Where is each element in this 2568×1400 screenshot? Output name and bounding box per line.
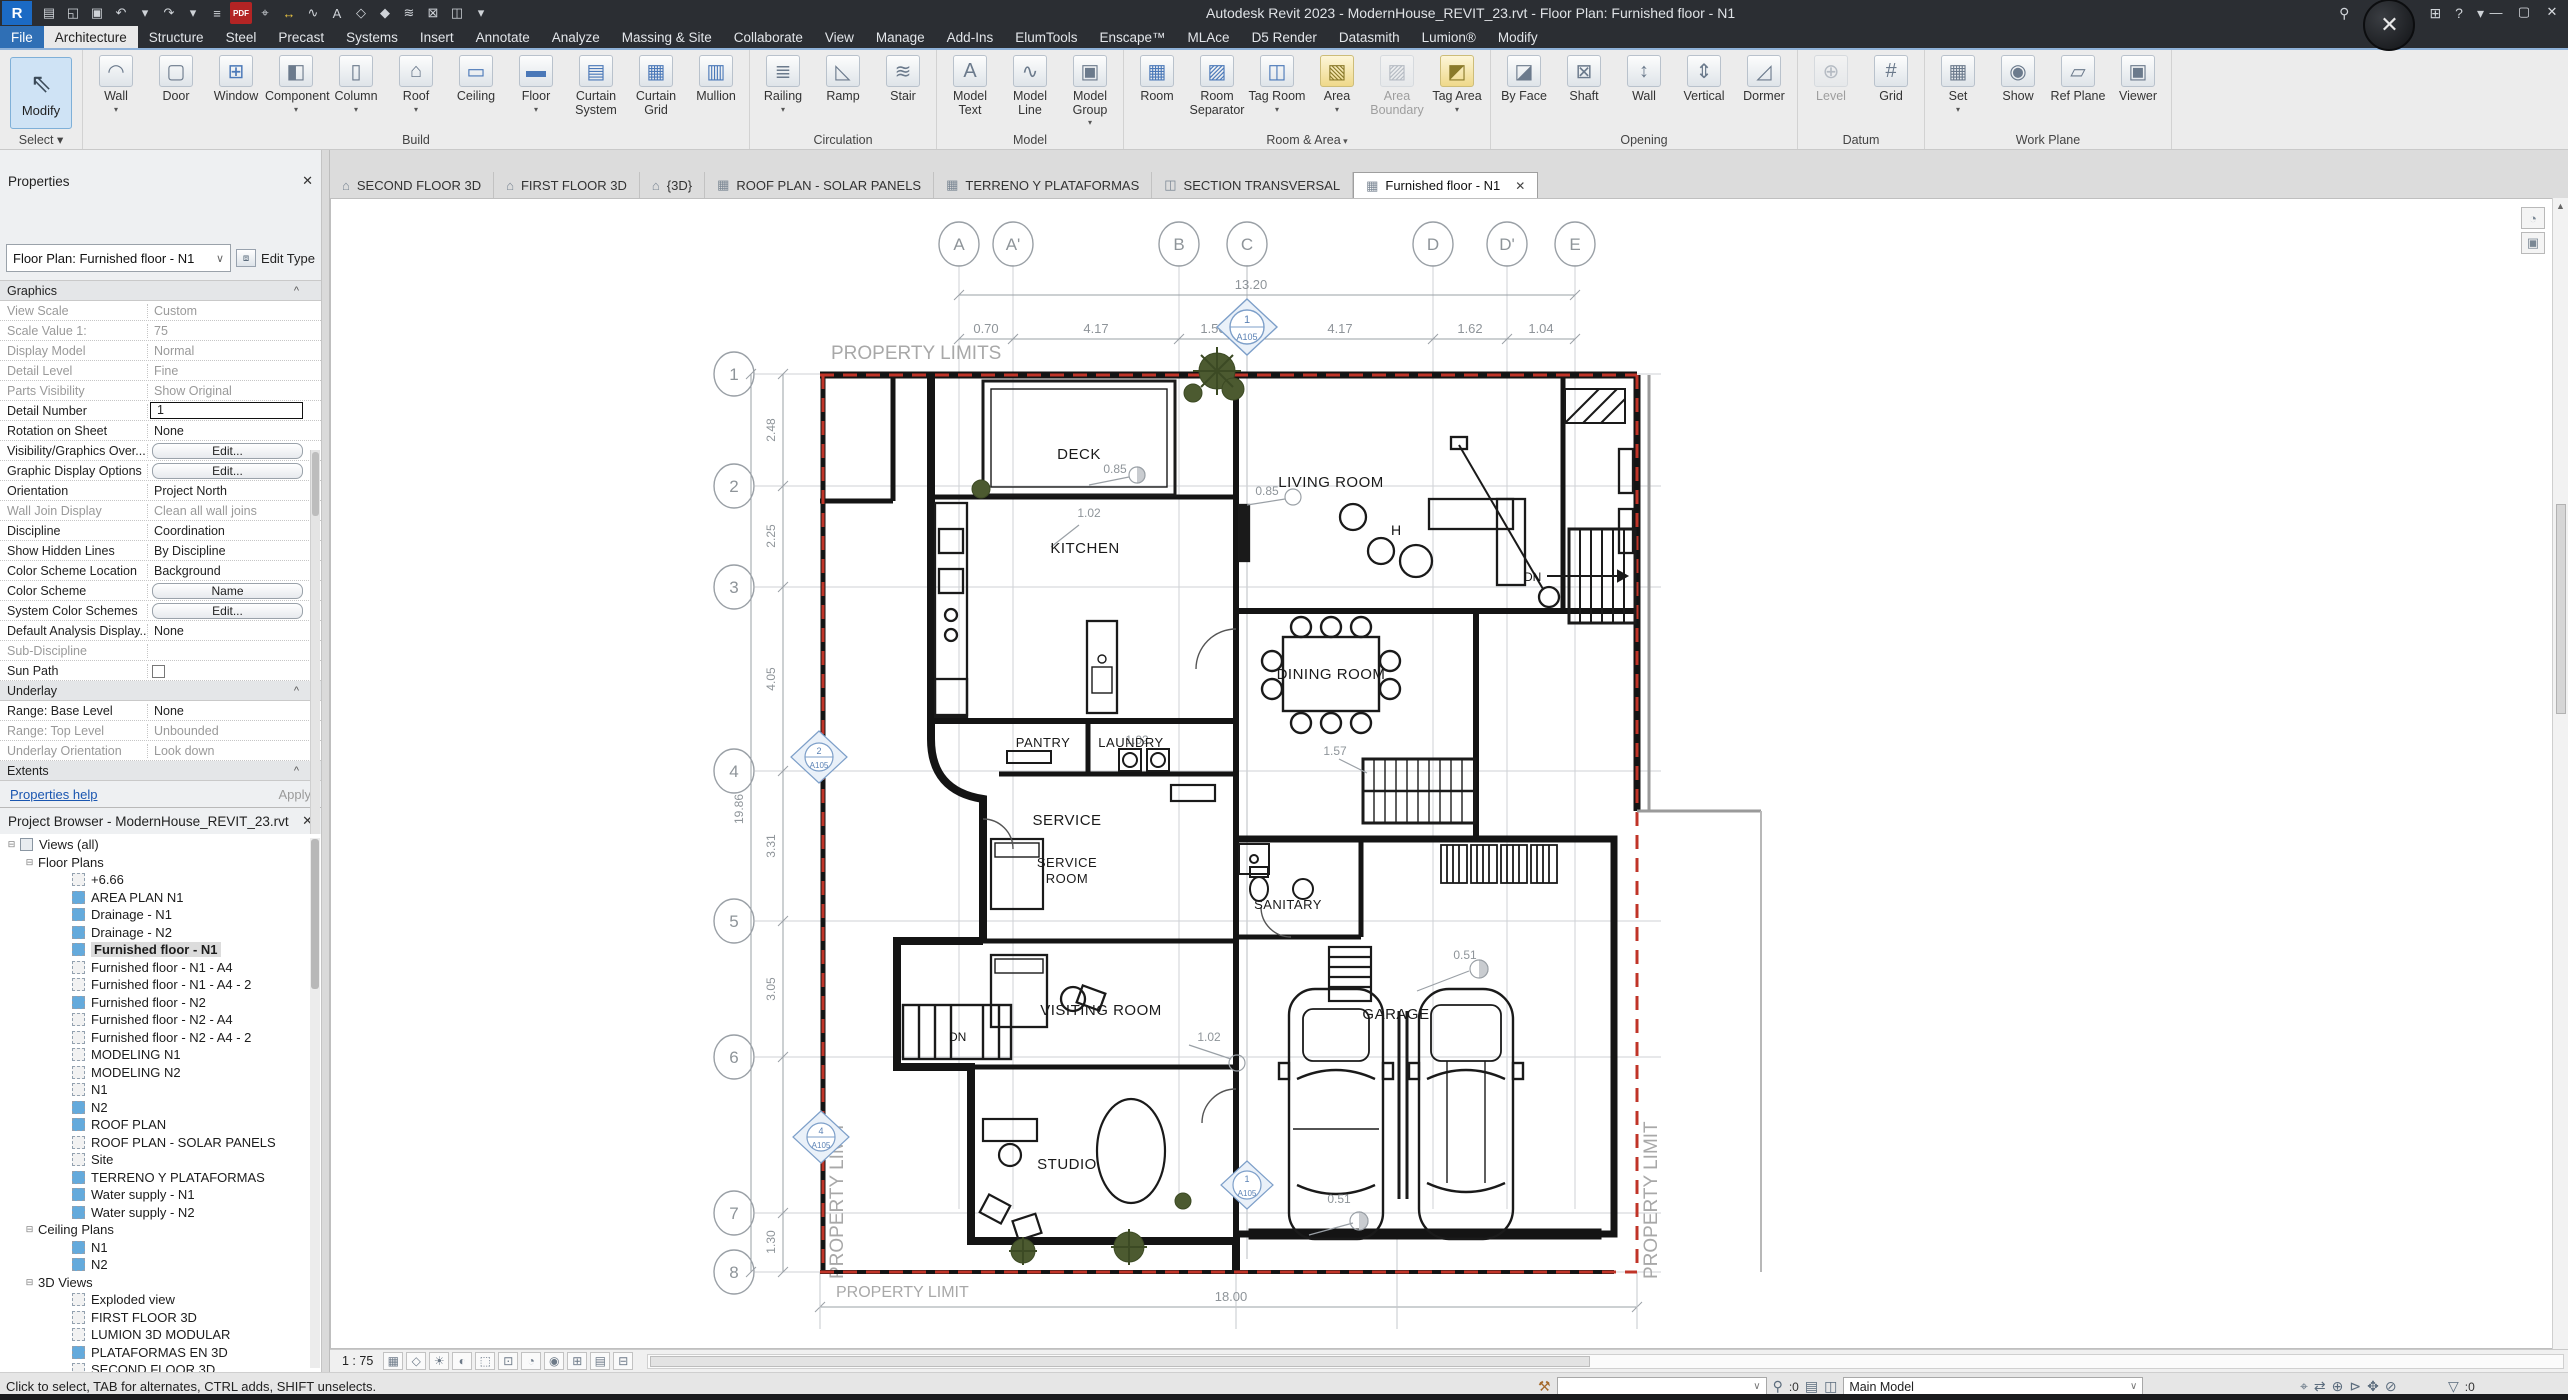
ribbon-tab[interactable]: Insert: [409, 26, 465, 48]
dimension-text: 0.70: [973, 321, 998, 336]
property-row[interactable]: Detail Number 1: [0, 401, 321, 421]
datum-panel: ⊕ Level # Grid Datum: [1798, 50, 1925, 149]
dimension-text: 0.85: [1255, 484, 1279, 498]
property-row[interactable]: Range: Base Level None: [0, 701, 321, 721]
room-label: LAUNDRY: [1098, 735, 1163, 750]
view-item-icon: [72, 926, 85, 939]
property-row[interactable]: Show Hidden Lines By Discipline: [0, 541, 321, 561]
room-label: VISITING ROOM: [1040, 1002, 1162, 1019]
ribbon-tab[interactable]: Enscape™: [1088, 26, 1176, 48]
set-workplane-button[interactable]: ▦ Set: [1929, 53, 1987, 114]
browser-tree-item[interactable]: ⊟ ROOF PLAN - SOLAR PANELS: [0, 1134, 321, 1152]
ribbon: ⇖ Modify Select ▾ ◠ Wall ▢ Door ⊞ Window…: [0, 48, 2568, 150]
close-button[interactable]: ✕: [2540, 4, 2564, 20]
grid-label: 6: [729, 1048, 738, 1067]
browser-tree-item[interactable]: ⊟ MODELING N2: [0, 1064, 321, 1082]
property-row[interactable]: Sub-Discipline: [0, 641, 321, 661]
edit-type-button[interactable]: ⧈ Edit Type: [236, 249, 315, 267]
model-text-button[interactable]: A Model Text: [941, 53, 999, 117]
datum-panel-title[interactable]: Datum: [1798, 132, 1924, 149]
svg-text:A105: A105: [1238, 1189, 1257, 1198]
dimension-text: 1.30: [764, 1230, 778, 1254]
grid-button[interactable]: # Grid: [1862, 53, 1920, 104]
level-button[interactable]: ⊕ Level: [1802, 53, 1860, 104]
worksets-icon[interactable]: ⚒: [1538, 1378, 1551, 1395]
ribbon-tab[interactable]: Add-Ins: [936, 26, 1005, 48]
room-label: ROOM: [1046, 871, 1088, 886]
grid-label: E: [1569, 235, 1580, 254]
column-marker: H: [1391, 522, 1401, 538]
default-3d-view-icon[interactable]: ◇: [350, 2, 372, 24]
expand-icon[interactable]: ⊟: [24, 1277, 35, 1288]
service-room-furniture: [991, 785, 1215, 909]
property-row[interactable]: Orientation Project North: [0, 481, 321, 501]
ribbon-tab[interactable]: Structure: [138, 26, 215, 48]
dimension-text: 1.04: [1528, 321, 1553, 336]
detail-line-icon[interactable]: ∿: [302, 2, 324, 24]
customize-qat-icon[interactable]: ▾: [470, 2, 492, 24]
view-tab[interactable]: ▦ Furnished floor - N1 ✕: [1353, 172, 1538, 198]
help-icon[interactable]: ?: [2455, 5, 2463, 21]
browser-tree-item[interactable]: ⊟ MODELING N1: [0, 1046, 321, 1064]
text-icon[interactable]: A: [326, 2, 348, 24]
room-area-panel-title[interactable]: Room & Area: [1124, 132, 1490, 149]
properties-table: Graphics View Scale Custom Scale Value 1…: [0, 280, 321, 781]
drawing-area[interactable]: A A' B C D D' E 1 2 3 4 5 6 7 8 13.20 0.…: [330, 198, 2568, 1349]
view-tab[interactable]: ⌂ FIRST FLOOR 3D: [494, 172, 640, 198]
ribbon-tab[interactable]: Systems: [335, 26, 409, 48]
close-view-icon[interactable]: ✕: [1515, 179, 1525, 193]
svg-text:2: 2: [816, 746, 821, 756]
show-workplane-button[interactable]: ◉ Show: [1989, 53, 2047, 104]
wall-button[interactable]: ◠ Wall: [87, 53, 145, 114]
project-browser: Project Browser - ModernHouse_REVIT_23.r…: [0, 807, 321, 1372]
tag-area-button[interactable]: ◩ Tag Area: [1428, 53, 1486, 114]
view-tab[interactable]: ⌂ {3D}: [640, 172, 705, 198]
filter-icon[interactable]: ▽: [2448, 1378, 2459, 1395]
view-item-icon: [72, 978, 85, 991]
view-tab[interactable]: ▦ TERRENO Y PLATAFORMAS: [934, 172, 1152, 198]
property-row[interactable]: Color Scheme Name: [0, 581, 321, 601]
browser-tree-item[interactable]: ⊟ +6.66: [0, 871, 321, 889]
overall-dimension: 13.20: [1235, 277, 1268, 292]
viewer-button[interactable]: ▣ Viewer: [2109, 53, 2167, 104]
redo-drop-icon[interactable]: ▾: [182, 2, 204, 24]
save-icon[interactable]: ▣: [86, 2, 108, 24]
browser-tree-item[interactable]: ⊟ Site: [0, 1151, 321, 1169]
dimension-text: 2.25: [764, 524, 778, 548]
property-row[interactable]: Range: Top Level Unbounded: [0, 721, 321, 741]
property-row[interactable]: Scale Value 1: 75: [0, 321, 321, 341]
property-row[interactable]: Default Analysis Display... None: [0, 621, 321, 641]
view-item-icon: [72, 891, 85, 904]
property-row[interactable]: Underlay: [0, 681, 321, 701]
browser-tree-item[interactable]: ⊟ Views (all): [0, 836, 321, 854]
room-label: DINING ROOM: [1277, 666, 1386, 683]
floor-plan-canvas: A A' B C D D' E 1 2 3 4 5 6 7 8 13.20 0.…: [331, 199, 2568, 1349]
view-item-icon: [72, 1171, 85, 1184]
print-icon[interactable]: ≡: [206, 2, 228, 24]
roof-button[interactable]: ⌂ Roof: [387, 53, 445, 114]
minimize-button[interactable]: —: [2484, 5, 2508, 20]
opening-panel-title[interactable]: Opening: [1491, 132, 1797, 149]
sanitary-fixtures: [1239, 844, 1313, 901]
detail-level-icon[interactable]: ▦: [383, 1352, 403, 1370]
select-panel-title[interactable]: Select ▾: [0, 132, 82, 149]
svg-text:1: 1: [1244, 314, 1250, 326]
revit-logo-icon[interactable]: R: [2, 1, 32, 25]
svg-text:4: 4: [818, 1126, 823, 1136]
model-panel: A Model Text ∿ Model Line ▣ Model Group …: [937, 50, 1124, 149]
export-pdf-icon[interactable]: PDF: [230, 2, 252, 24]
switch-windows-icon[interactable]: ◫: [446, 2, 468, 24]
chevron-down-icon: ∨: [216, 252, 224, 265]
title-bar: R ▤◱▣↶▾↷▾≡PDF⌖↔∿A◇◆≋⊠◫▾ Autodesk Revit 2…: [0, 0, 2568, 26]
browser-tree-item[interactable]: ⊟ Drainage - N2: [0, 924, 321, 942]
editable-only-icon[interactable]: ⚲: [1773, 1378, 1783, 1395]
reveal-hidden-icon[interactable]: ◉: [544, 1352, 564, 1370]
ribbon-tab[interactable]: Architecture: [44, 26, 138, 48]
view-tab[interactable]: ▦ ROOF PLAN - SOLAR PANELS: [705, 172, 934, 198]
ribbon-tab[interactable]: Modify: [1487, 26, 1549, 48]
browser-tree-item[interactable]: ⊟ Furnished floor - N1 - A4: [0, 959, 321, 977]
grid-label: 3: [729, 578, 738, 597]
ribbon-tab[interactable]: D5 Render: [1241, 26, 1328, 48]
work-plane-panel: ▦ Set ◉ Show ▱ Ref Plane ▣ Viewer Work P…: [1925, 50, 2172, 149]
grid-label: 1: [729, 365, 738, 384]
browser-tree-item[interactable]: ⊟ N2: [0, 1256, 321, 1274]
show-crop-icon[interactable]: ⊡: [498, 1352, 518, 1370]
measure-icon[interactable]: ⌖: [254, 2, 276, 24]
browser-tree-item[interactable]: ⊟ AREA PLAN N1: [0, 889, 321, 907]
browser-tree-item[interactable]: ⊟ TERRENO Y PLATAFORMAS: [0, 1169, 321, 1187]
grid-label: C: [1241, 235, 1253, 254]
browser-tree-item[interactable]: ⊟ N1: [0, 1239, 321, 1257]
active-option-icon[interactable]: ◫: [1824, 1378, 1837, 1395]
property-row[interactable]: Discipline Coordination: [0, 521, 321, 541]
zoom-control-icon[interactable]: ▣: [2521, 232, 2545, 254]
temporary-view-properties-icon[interactable]: ▤: [590, 1352, 610, 1370]
property-row[interactable]: System Color Schemes Edit...: [0, 601, 321, 621]
scrollbar-thumb: [2556, 504, 2566, 714]
ribbon-tab[interactable]: Annotate: [465, 26, 541, 48]
browser-tree-item[interactable]: ⊟ SECOND FLOOR 3D: [0, 1361, 321, 1372]
chevron-down-icon: ∨: [2130, 1381, 2137, 1392]
modify-button[interactable]: ⇖ Modify: [10, 57, 72, 129]
view-tab[interactable]: ◫ SECTION TRANSVERSAL: [1152, 172, 1353, 198]
ribbon-tab[interactable]: Manage: [865, 26, 936, 48]
dimension-text: 3.31: [764, 834, 778, 858]
ribbon-tab[interactable]: View: [814, 26, 865, 48]
ribbon-tab[interactable]: Lumion®: [1411, 26, 1487, 48]
grid-label: D': [1499, 235, 1515, 254]
browser-tree-item[interactable]: ⊟ PLATAFORMAS EN 3D: [0, 1344, 321, 1362]
opening-panel: ◪ By Face ⊠ Shaft ↕ Wall ⇕ Vertical ◿ Do…: [1491, 50, 1798, 149]
close-hidden-windows-icon[interactable]: ⊠: [422, 2, 444, 24]
ribbon-tab[interactable]: ElumTools: [1004, 26, 1088, 48]
view-item-icon: [72, 1153, 85, 1166]
panel-splitter[interactable]: [322, 150, 330, 1372]
expand-icon[interactable]: ⊟: [24, 857, 35, 868]
property-row[interactable]: View Scale Custom: [0, 301, 321, 321]
view-scale-button[interactable]: 1 : 75: [342, 1354, 373, 1368]
tag-room-button[interactable]: ◫ Tag Room: [1248, 53, 1306, 114]
drag-on-selection-icon[interactable]: ✥: [2367, 1378, 2379, 1395]
search-icon[interactable]: ⚲: [2339, 5, 2349, 22]
ribbon-tab[interactable]: Massing & Site: [611, 26, 723, 48]
view-item-icon: [72, 996, 85, 1009]
dimension-text: 1.62: [1457, 321, 1482, 336]
model-group-button[interactable]: ▣ Model Group: [1061, 53, 1119, 127]
browser-tree-item[interactable]: ⊟ FIRST FLOOR 3D: [0, 1309, 321, 1327]
worksharing-display-icon[interactable]: ⊞: [567, 1352, 587, 1370]
visual-style-icon[interactable]: ◇: [406, 1352, 426, 1370]
view-control-bar: 1 : 75 ▦◇☀◐⬚⊡◔◉⊞▤⊟: [330, 1349, 2568, 1372]
view-item-icon: [72, 1101, 85, 1114]
elevation-marker[interactable]: 2 A105: [791, 731, 847, 783]
vertical-opening-button[interactable]: ⇕ Vertical: [1675, 53, 1733, 104]
room-button[interactable]: ▦ Room: [1128, 53, 1186, 104]
property-row[interactable]: Parts Visibility Show Original: [0, 381, 321, 401]
room-label: GARAGE: [1362, 1006, 1429, 1023]
ribbon-tab[interactable]: Datasmith: [1328, 26, 1411, 48]
property-row[interactable]: Extents: [0, 761, 321, 781]
dimension-text: 0.85: [1103, 462, 1127, 476]
restore-button[interactable]: ▢: [2512, 4, 2536, 20]
help-dropdown-icon[interactable]: ▾: [2477, 5, 2484, 22]
select-by-face-icon[interactable]: ⊳: [2349, 1378, 2361, 1395]
horizontal-scrollbar[interactable]: [647, 1354, 2564, 1369]
store-cart-icon[interactable]: ⊞: [2429, 5, 2441, 22]
browser-tree-item[interactable]: ⊟ Water supply - N2: [0, 1204, 321, 1222]
property-row[interactable]: Visibility/Graphics Over... Edit...: [0, 441, 321, 461]
undo-drop-icon[interactable]: ▾: [134, 2, 156, 24]
work-plane-panel-title[interactable]: Work Plane: [1925, 132, 2171, 149]
view-item-icon: [72, 908, 85, 921]
browser-tree-item[interactable]: ⊟ N1: [0, 1081, 321, 1099]
stair-dn-label: DN: [949, 1030, 966, 1044]
section-marker[interactable]: 1 A105: [1221, 1161, 1273, 1209]
door-swings: [983, 629, 1291, 1123]
curtain-grid-button[interactable]: ▦ Curtain Grid: [627, 53, 685, 117]
deck: [983, 381, 1175, 495]
property-row[interactable]: Underlay Orientation Look down: [0, 741, 321, 761]
property-row[interactable]: Color Scheme Location Background: [0, 561, 321, 581]
dimension-text: 1.57: [1323, 744, 1347, 758]
ramp-button[interactable]: ◺ Ramp: [814, 53, 872, 104]
view-type-icon: ◫: [1164, 177, 1176, 193]
property-row[interactable]: Rotation on Sheet None: [0, 421, 321, 441]
view-item-icon: [72, 1311, 85, 1324]
ribbon-tab[interactable]: File: [0, 26, 44, 48]
select-links-icon[interactable]: ⌖: [2300, 1378, 2308, 1395]
vertical-scrollbar[interactable]: ▲: [2552, 198, 2568, 1349]
view-tab[interactable]: ⌂ SECOND FLOOR 3D: [330, 172, 494, 198]
car: [1409, 989, 1523, 1239]
ribbon-tab[interactable]: Steel: [215, 26, 268, 48]
apply-button[interactable]: Apply: [278, 787, 311, 802]
expand-icon[interactable]: ⊟: [6, 839, 17, 850]
area-button[interactable]: ▧ Area: [1308, 53, 1366, 114]
view-item-icon: [72, 873, 85, 886]
property-limit-label: PROPERTY LIMIT: [1641, 1121, 1662, 1279]
model-panel-title[interactable]: Model: [937, 132, 1123, 149]
parking-divider: [1399, 1011, 1407, 1199]
room-label: DECK: [1057, 446, 1101, 463]
view-item-icon: [20, 838, 33, 851]
properties-scrollbar[interactable]: [310, 450, 320, 880]
browser-tree-item[interactable]: ⊟ Furnished floor - N2: [0, 994, 321, 1012]
sun-path-icon[interactable]: ☀: [429, 1352, 449, 1370]
view-type-icon: ▦: [717, 177, 729, 193]
scrollbar-thumb: [650, 1356, 1590, 1367]
property-row[interactable]: Graphic Display Options Edit...: [0, 461, 321, 481]
crop-view-icon[interactable]: ⬚: [475, 1352, 495, 1370]
property-row[interactable]: Display Model Normal: [0, 341, 321, 361]
project-browser-header: Project Browser - ModernHouse_REVIT_23.r…: [0, 808, 321, 834]
kitchen-fixtures: [935, 503, 1117, 717]
view-item-icon: [72, 1048, 85, 1061]
entry-stair: [1547, 389, 1635, 623]
browser-tree-item[interactable]: ⊟ Floor Plans: [0, 854, 321, 872]
browser-tree-item[interactable]: ⊟ Drainage - N1: [0, 906, 321, 924]
dimension-text: 4.17: [1327, 321, 1352, 336]
dimension-text: 1.02: [1197, 1030, 1221, 1044]
view-item-icon: [72, 1206, 85, 1219]
grid-label: B: [1173, 235, 1184, 254]
ribbon-tab[interactable]: Analyze: [541, 26, 611, 48]
dimension-text: 18.00: [1215, 1289, 1248, 1304]
wall-opening-button[interactable]: ↕ Wall: [1615, 53, 1673, 104]
room-label: SERVICE: [1037, 855, 1097, 870]
close-properties-icon[interactable]: ✕: [302, 173, 313, 189]
property-row[interactable]: Wall Join Display Clean all wall joins: [0, 501, 321, 521]
equipment-louvers: [1441, 845, 1557, 883]
dimension-text: 1.02: [1077, 506, 1101, 520]
select-underlay-icon[interactable]: ⇄: [2314, 1378, 2326, 1395]
browser-tree-item[interactable]: ⊟ Ceiling Plans: [0, 1221, 321, 1239]
section-marker[interactable]: 1 A105: [1217, 299, 1277, 355]
properties-icon[interactable]: ▤: [38, 2, 60, 24]
component-button[interactable]: ◧ Component: [267, 53, 325, 114]
property-row[interactable]: Sun Path: [0, 661, 321, 681]
living-room-furniture: [1239, 437, 1633, 607]
view-item-icon: [72, 1013, 85, 1026]
room-area-panel: ▦ Room ▨ Room Separator ◫ Tag Room ▧ Are…: [1124, 50, 1491, 149]
door-button[interactable]: ▢ Door: [147, 53, 205, 104]
status-hint: Click to select, TAB for alternates, CTR…: [6, 1379, 376, 1394]
railing-button[interactable]: ≣ Railing: [754, 53, 812, 114]
view-item-icon: [72, 1258, 85, 1271]
room-separator-button[interactable]: ▨ Room Separator: [1188, 53, 1246, 117]
expand-icon[interactable]: ⊟: [24, 1224, 35, 1235]
steering-wheel-icon[interactable]: ◔: [2521, 207, 2545, 229]
grid-bubbles-columns: [939, 222, 1595, 266]
property-row[interactable]: Graphics: [0, 281, 321, 301]
select-pinned-icon[interactable]: ⊕: [2332, 1378, 2344, 1395]
browser-tree-item[interactable]: ⊟ Furnished floor - N2 - A4: [0, 1011, 321, 1029]
view-item-icon: [72, 943, 85, 956]
dimension-text: 4.05: [764, 667, 778, 691]
circulation-panel-title[interactable]: Circulation: [750, 132, 936, 149]
browser-tree-item[interactable]: ⊟ N2: [0, 1099, 321, 1117]
grid-label: 5: [729, 912, 738, 931]
section-icon[interactable]: ◆: [374, 2, 396, 24]
ceiling-button[interactable]: ▭ Ceiling: [447, 53, 505, 104]
background-process-icon[interactable]: ⊘: [2385, 1378, 2397, 1395]
interior-stair: [1363, 759, 1475, 823]
dormer-button[interactable]: ◿ Dormer: [1735, 53, 1793, 104]
properties-help-link[interactable]: Properties help: [10, 787, 97, 802]
design-options-icon[interactable]: ▤: [1805, 1378, 1818, 1395]
shaft-button[interactable]: ⊠ Shaft: [1555, 53, 1613, 104]
view-item-icon: [72, 1083, 85, 1096]
thin-lines-icon[interactable]: ≋: [398, 2, 420, 24]
room-label: STUDIO: [1037, 1156, 1097, 1173]
view-item-icon: [72, 1241, 85, 1254]
area-boundary-button[interactable]: ▨ Area Boundary: [1368, 53, 1426, 117]
svg-text:A105: A105: [1236, 332, 1257, 342]
browser-tree-item[interactable]: ⊟ 3D Views: [0, 1274, 321, 1292]
window-button[interactable]: ⊞ Window: [207, 53, 265, 104]
select-panel: ⇖ Modify Select ▾: [0, 50, 83, 149]
property-row[interactable]: Detail Level Fine: [0, 361, 321, 381]
floor-button[interactable]: ▬ Floor: [507, 53, 565, 114]
open-icon[interactable]: ◱: [62, 2, 84, 24]
undo-icon[interactable]: ↶: [110, 2, 132, 24]
view-item-icon: [72, 1136, 85, 1149]
ribbon-tab[interactable]: MLAce: [1177, 26, 1241, 48]
temporary-hide-icon[interactable]: ◔: [521, 1352, 541, 1370]
browser-tree-item[interactable]: ⊟ Furnished floor - N1 - A4 - 2: [0, 976, 321, 994]
ref-plane-button[interactable]: ▱ Ref Plane: [2049, 53, 2107, 104]
browser-tree-item[interactable]: ⊟ Exploded view: [0, 1291, 321, 1309]
browser-scrollbar[interactable]: [310, 838, 320, 1368]
ribbon-tab[interactable]: Precast: [267, 26, 335, 48]
room-label: PANTRY: [1016, 735, 1071, 750]
by-face-button[interactable]: ◪ By Face: [1495, 53, 1553, 104]
mullion-button[interactable]: ▥ Mullion: [687, 53, 745, 104]
type-selector[interactable]: Floor Plan: Furnished floor - N1∨: [6, 244, 231, 272]
grid-label: 8: [729, 1263, 738, 1282]
stair-button[interactable]: ≋ Stair: [874, 53, 932, 104]
column-button[interactable]: ▯ Column: [327, 53, 385, 114]
scroll-up-icon: ▲: [2556, 198, 2565, 214]
overall-dimension: 19.86: [732, 794, 746, 824]
browser-tree-item[interactable]: ⊟ ROOF PLAN: [0, 1116, 321, 1134]
browser-tree: ⊟ Views (all) ⊟ Floor Plans ⊟ +6.66 ⊟ AR…: [0, 834, 321, 1372]
browser-tree-item[interactable]: ⊟ Furnished floor - N2 - A4 - 2: [0, 1029, 321, 1047]
browser-tree-item[interactable]: ⊟ LUMION 3D MODULAR: [0, 1326, 321, 1344]
reveal-constraints-icon[interactable]: ⊟: [613, 1352, 633, 1370]
shadows-icon[interactable]: ◐: [452, 1352, 472, 1370]
dimension-text: 4.17: [1083, 321, 1108, 336]
browser-tree-item[interactable]: ⊟ Water supply - N1: [0, 1186, 321, 1204]
ribbon-tab[interactable]: Collaborate: [723, 26, 814, 48]
model-line-button[interactable]: ∿ Model Line: [1001, 53, 1059, 117]
redo-icon[interactable]: ↷: [158, 2, 180, 24]
quick-access-toolbar: ▤◱▣↶▾↷▾≡PDF⌖↔∿A◇◆≋⊠◫▾: [38, 2, 492, 24]
view-item-icon: [72, 961, 85, 974]
browser-tree-item[interactable]: ⊟ Furnished floor - N1: [0, 941, 321, 959]
edit-type-icon: ⧈: [236, 249, 256, 267]
room-label: KITCHEN: [1050, 540, 1119, 557]
aligned-dimension-icon[interactable]: ↔: [278, 2, 300, 24]
build-panel: ◠ Wall ▢ Door ⊞ Window ◧ Component ▯ Col…: [83, 50, 750, 149]
property-limits-label: PROPERTY LIMITS: [831, 343, 1001, 364]
build-panel-title[interactable]: Build: [83, 132, 749, 149]
curtain-system-button[interactable]: ▤ Curtain System: [567, 53, 625, 117]
